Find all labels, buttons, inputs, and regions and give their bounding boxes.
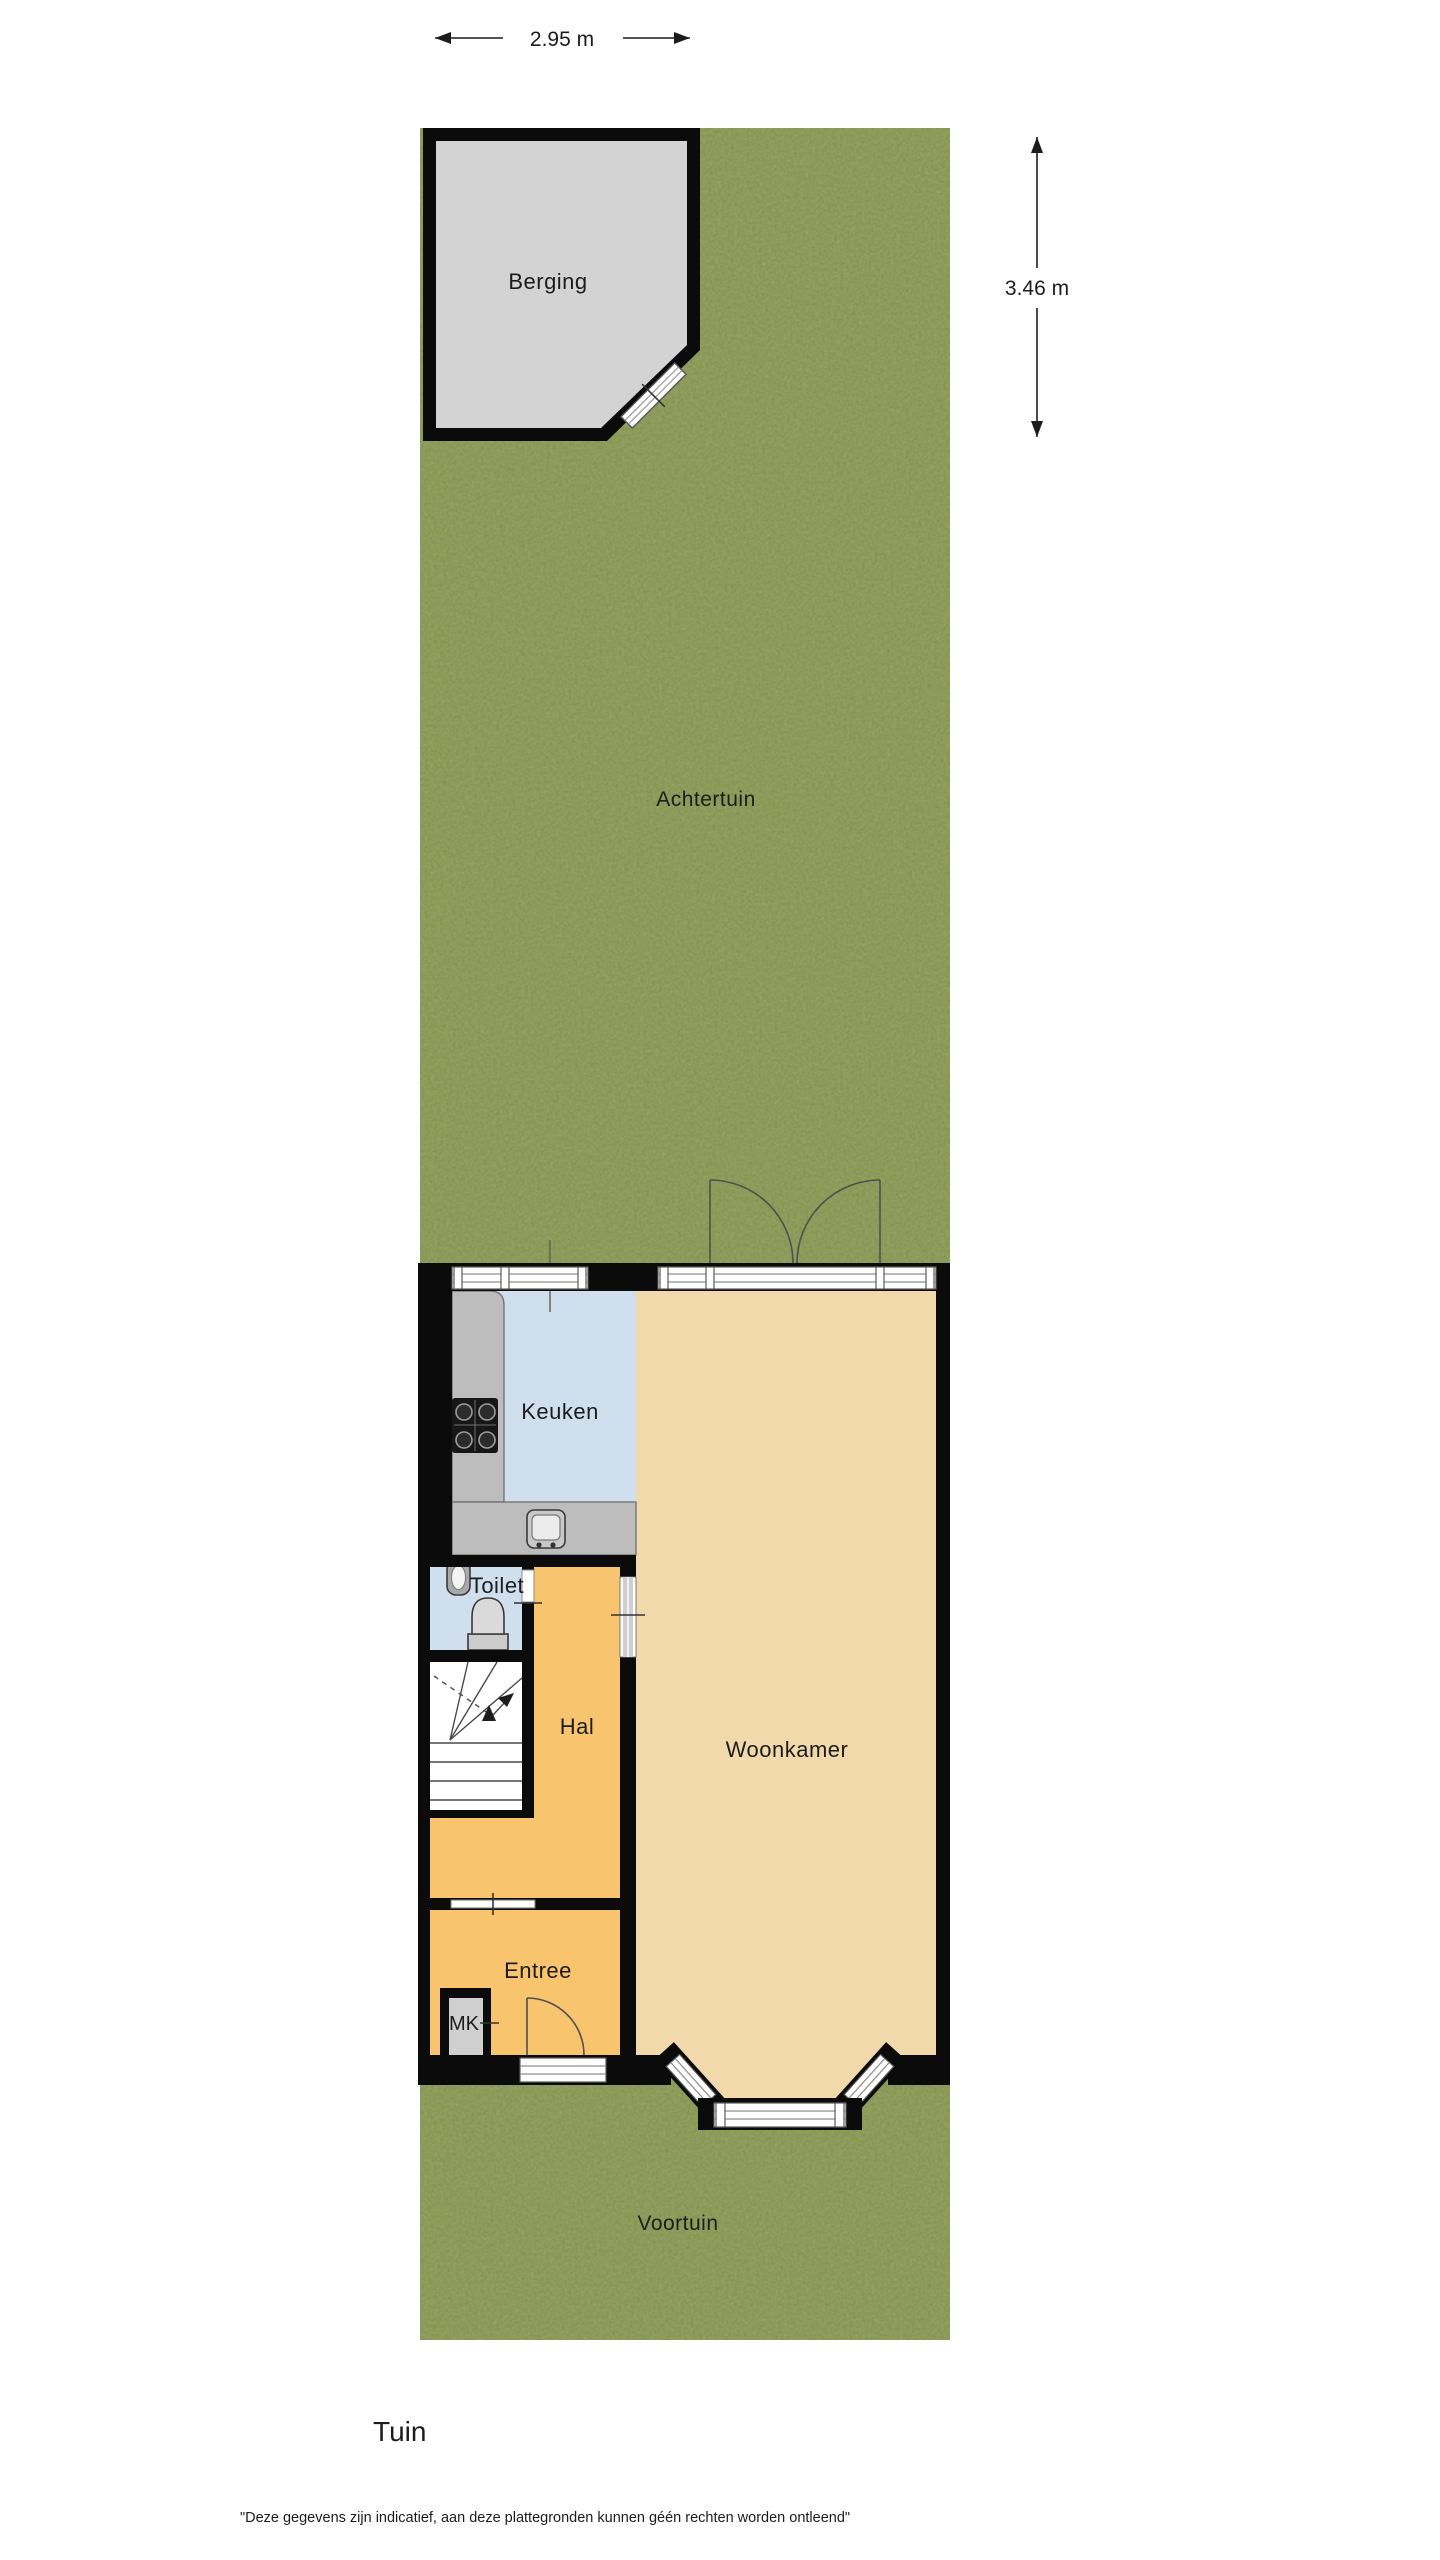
wall-left-chimney: [425, 1263, 452, 1567]
toilet-label: Toilet: [470, 1573, 524, 1598]
arrow-up-icon: [1031, 137, 1043, 153]
hall-label: Hal: [560, 1714, 595, 1739]
wall-stairs-south: [426, 1810, 534, 1818]
floorplan-canvas: Berging 2.95 m 3.46 m Achtertuin: [0, 0, 1440, 2560]
stove: [452, 1398, 498, 1453]
meter-closet-label: MK: [449, 2013, 480, 2035]
arrow-down-icon: [1031, 421, 1043, 437]
back-garden-label: Achtertuin: [656, 788, 756, 811]
floorplan-page: Berging 2.95 m 3.46 m Achtertuin: [0, 0, 1440, 2560]
page-title: Tuin: [373, 2416, 426, 2447]
dimension-height-label: 3.46 m: [1005, 277, 1069, 300]
wall-toilet-south: [418, 1650, 534, 1662]
front-garden-label: Voortuin: [637, 2212, 718, 2235]
dimension-height: 3.46 m: [1005, 137, 1069, 437]
kitchen-label: Keuken: [521, 1399, 599, 1424]
dimension-width-label: 2.95 m: [530, 28, 594, 51]
shed-berging: Berging: [423, 128, 700, 441]
house: Keuken Woonkamer Toilet Hal Entree MK: [418, 1180, 950, 2130]
arrow-left-icon: [435, 32, 451, 44]
toilet-bowl: [468, 1598, 508, 1650]
shed-label: Berging: [508, 269, 587, 294]
kitchen-sink: [527, 1510, 565, 1548]
arrow-right-icon: [674, 32, 690, 44]
living-room-label: Woonkamer: [726, 1737, 849, 1762]
stairs-floor: [426, 1662, 522, 1810]
disclaimer-text: "Deze gegevens zijn indicatief, aan deze…: [240, 2510, 850, 2526]
entry-label: Entree: [504, 1958, 572, 1983]
dimension-width: 2.95 m: [435, 28, 690, 51]
wall-stairs-east: [522, 1662, 534, 1818]
rear-windows: [452, 1267, 936, 1289]
living-room-floor: [636, 1291, 936, 2106]
wall-right: [936, 1263, 950, 2085]
